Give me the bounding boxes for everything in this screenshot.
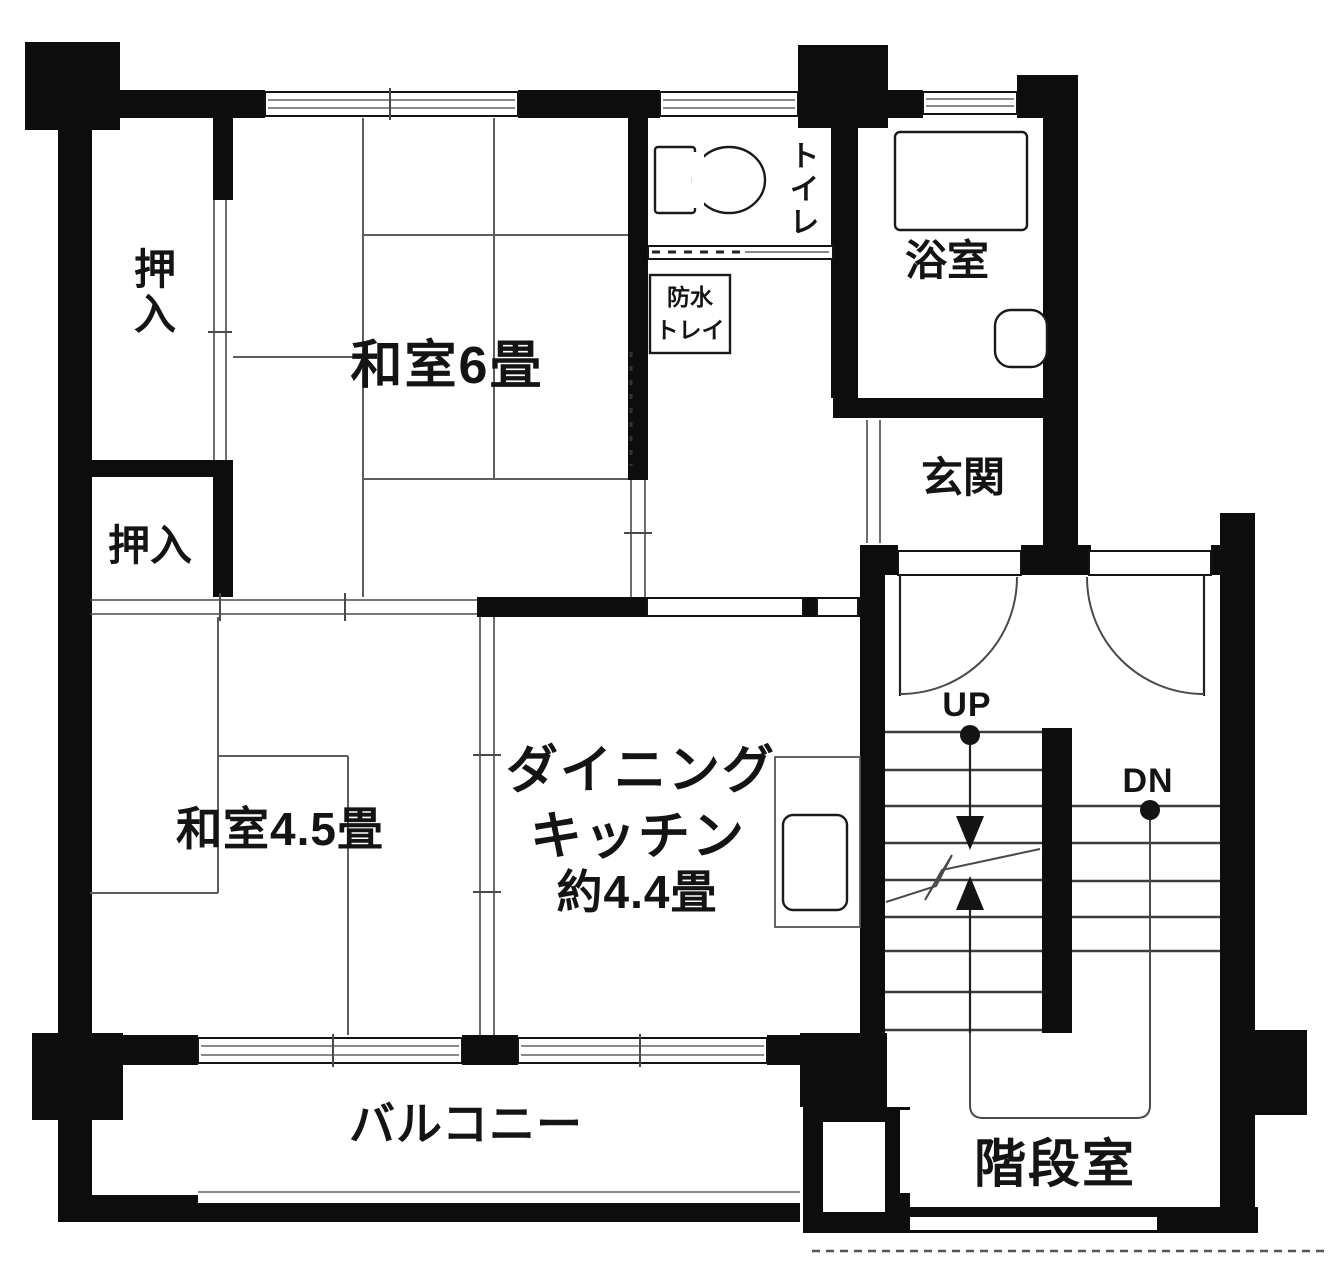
wall-balcony-top-b — [767, 1035, 800, 1065]
wall-closet-right-lower — [213, 460, 233, 597]
window-balcony-right — [518, 1034, 767, 1067]
stair-treads-right — [1072, 806, 1220, 951]
block-stair-bottomleft-a — [800, 1033, 887, 1107]
fusuma-closet-upper — [208, 200, 232, 460]
wall-bath-right — [1043, 118, 1078, 398]
wall-balcony-top-a — [92, 1035, 198, 1065]
wall-hall-bath — [831, 118, 858, 398]
block-right-protrusion — [1255, 1030, 1307, 1115]
wall-bath-bottom — [833, 398, 1078, 418]
wall-dk-top-a — [477, 597, 647, 617]
wall-top-d — [1017, 75, 1078, 118]
opening-hall-entrance — [817, 598, 858, 616]
kitchen-sink — [783, 815, 847, 910]
label-stairwell: 階段室 — [974, 1136, 1136, 1194]
label-washitsu6: 和室6畳 — [351, 337, 544, 395]
wall-top-b — [518, 90, 660, 118]
wall-entrance-right — [1043, 418, 1078, 545]
bathtub — [895, 132, 1027, 230]
toilet-fixture — [655, 147, 765, 213]
label-closet-upper: 押入 — [129, 247, 176, 337]
wall-stair-top-b — [1021, 545, 1091, 575]
label-toilet: トイレ — [785, 140, 818, 239]
window-washitsu6-top — [265, 88, 518, 120]
stair-divider-wall — [1042, 728, 1072, 1033]
label-dk-size: 約4.4畳 — [557, 866, 718, 918]
stair-treads-left — [885, 732, 1042, 1030]
boundary-washitsu6-washitsu45 — [90, 593, 477, 621]
opening-hall-dk — [647, 598, 803, 616]
wall-closet-right-upper — [213, 118, 233, 200]
pillar-top-center — [798, 45, 888, 128]
window-balcony-left — [198, 1034, 462, 1067]
label-tray-line2: トレイ — [656, 317, 725, 343]
label-washitsu45: 和室4.5畳 — [176, 803, 384, 855]
pillar-balcony-mid — [462, 1035, 518, 1065]
window-toilet-top — [660, 92, 798, 116]
entry-door-right — [1087, 551, 1211, 696]
fusuma-washitsu6-dk — [624, 480, 652, 597]
arrowhead-down — [956, 816, 984, 850]
bathroom-door — [995, 310, 1047, 367]
floor-plan-drawing: 和室6畳 和室4.5畳 ダイニング キッチン 約4.4畳 押入 押入 トイレ 防… — [0, 0, 1330, 1274]
fusuma-washitsu45-dk — [473, 617, 501, 1035]
label-dn: DN — [1122, 762, 1173, 800]
wall-stair-top-a — [860, 545, 898, 575]
wall-stair-right — [1220, 513, 1255, 1233]
label-closet-lower: 押入 — [108, 522, 192, 569]
wall-top-a — [92, 90, 265, 118]
label-up: UP — [942, 686, 991, 724]
label-bathroom: 浴室 — [905, 237, 989, 284]
label-balcony: バルコニー — [349, 1098, 583, 1150]
entrance-step — [867, 420, 880, 543]
label-tray-line1: 防水 — [667, 284, 714, 310]
wall-gap — [900, 1110, 910, 1193]
meter-box — [823, 1122, 885, 1212]
label-dk-line2: キッチン — [530, 808, 746, 866]
toilet-sliding-door — [648, 246, 833, 259]
corner-bottom-left — [58, 1195, 198, 1222]
wall-closet-divider — [90, 460, 213, 477]
label-dk-line1: ダイニング — [506, 742, 776, 800]
stair-bottom-opening — [910, 1217, 1157, 1230]
wall-stair-left — [860, 575, 885, 1107]
label-entrance: 玄関 — [921, 454, 1005, 501]
balcony-rail — [198, 1203, 800, 1222]
window-bath-top — [923, 92, 1017, 114]
kitchen-counter — [775, 757, 860, 927]
entry-door-left — [898, 551, 1021, 696]
floor-plan-page: 和室6畳 和室4.5畳 ダイニング キッチン 約4.4畳 押入 押入 トイレ 防… — [0, 0, 1330, 1274]
wall-top-c — [888, 90, 923, 118]
wall-left-upper — [58, 90, 92, 1035]
